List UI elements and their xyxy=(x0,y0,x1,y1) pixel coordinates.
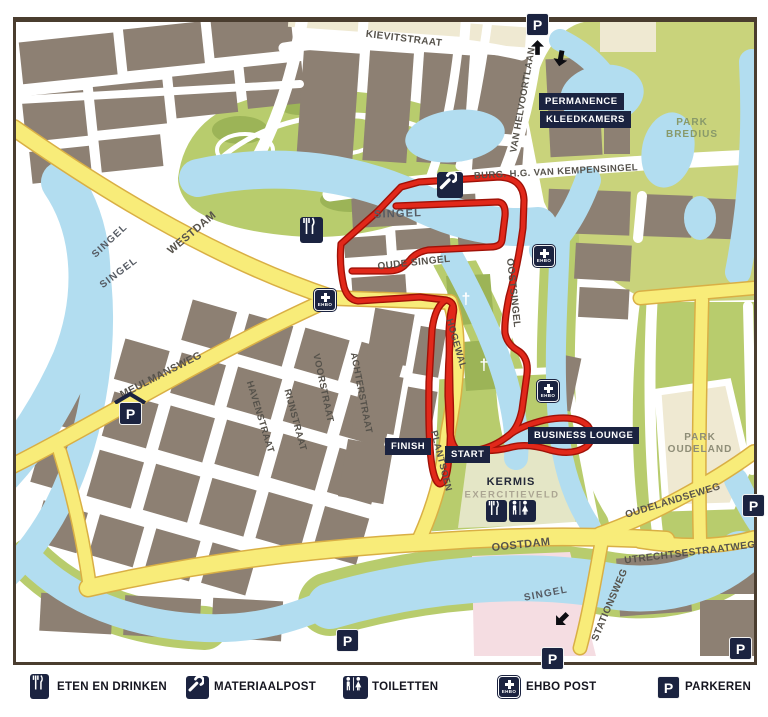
permanence-box: PERMANENCE xyxy=(539,93,624,110)
ehbo-icon: EHBO xyxy=(498,676,520,698)
park-bredius-line1: PARK xyxy=(666,117,718,129)
toilets-icon xyxy=(343,676,368,699)
ehbo-label: EHBO xyxy=(537,259,552,263)
park-label-bredius: PARK BREDIUS xyxy=(666,117,718,141)
kermis-label: KERMIS xyxy=(487,476,536,488)
ehbo-icon: EHBO xyxy=(537,380,559,402)
park-bredius-line2: BREDIUS xyxy=(666,129,718,141)
park-oudeland-line1: PARK xyxy=(668,432,733,444)
legend-label-toiletten: TOILETTEN xyxy=(372,681,438,693)
parking-letter: P xyxy=(749,498,758,514)
parking-letter: P xyxy=(343,633,352,649)
park-label-oudeland: PARK OUDELAND xyxy=(668,432,733,456)
parking-icon: P xyxy=(657,676,680,699)
parking-icon: P xyxy=(742,494,765,517)
cross-glyph xyxy=(321,293,330,302)
course-map-svg xyxy=(0,0,768,717)
wrench-icon xyxy=(437,172,463,198)
parking-icon: P xyxy=(526,13,549,36)
parking-letter: P xyxy=(533,17,542,33)
church-cross-icon: † xyxy=(462,291,471,309)
wrench-icon xyxy=(186,676,209,699)
legend-label-eten-en-drinken: ETEN EN DRINKEN xyxy=(57,681,167,693)
cross-glyph xyxy=(505,680,514,689)
kleedkamers-box: KLEEDKAMERS xyxy=(540,111,631,128)
restaurant-icon xyxy=(486,500,507,522)
legend-label-ehbo-post: EHBO POST xyxy=(526,681,596,693)
map-frame-top xyxy=(13,17,757,22)
finish-box: FINISH xyxy=(385,438,431,455)
park-oudeland-line2: OUDELAND xyxy=(668,444,733,456)
ehbo-label: EHBO xyxy=(318,303,333,307)
ehbo-label: EHBO xyxy=(541,394,556,398)
ehbo-icon: EHBO xyxy=(533,245,555,267)
ehbo-label: EHBO xyxy=(502,690,517,694)
toilets-icon xyxy=(509,500,536,522)
restaurant-icon xyxy=(300,217,323,243)
legend-label-parkeren: PARKEREN xyxy=(685,681,751,693)
ehbo-icon: EHBO xyxy=(314,289,336,311)
parking-icon: P xyxy=(729,637,752,660)
business-lounge-box: BUSINESS LOUNGE xyxy=(528,427,639,444)
parking-icon: P xyxy=(541,647,564,670)
exercitieveld-label: EXERCITIEVELD xyxy=(465,490,560,501)
water-label-singel-mid: SINGEL xyxy=(374,207,423,221)
cross-glyph xyxy=(540,249,549,258)
parking-icon: P xyxy=(336,629,359,652)
legend-label-materiaalpost: MATERIAALPOST xyxy=(214,681,316,693)
cross-glyph xyxy=(544,384,553,393)
church-cross-icon: † xyxy=(480,357,489,375)
parking-letter: P xyxy=(548,651,557,667)
parking-letter: P xyxy=(126,406,135,422)
parking-letter: P xyxy=(664,680,673,696)
restaurant-icon xyxy=(30,674,49,699)
start-box: START xyxy=(445,446,490,463)
parking-letter: P xyxy=(736,641,745,657)
course-map-page: KIEVITSTRAAT VAN HELVOORTLAAN BURG. H.G.… xyxy=(0,0,768,717)
parking-garage-icon: P xyxy=(119,402,142,425)
